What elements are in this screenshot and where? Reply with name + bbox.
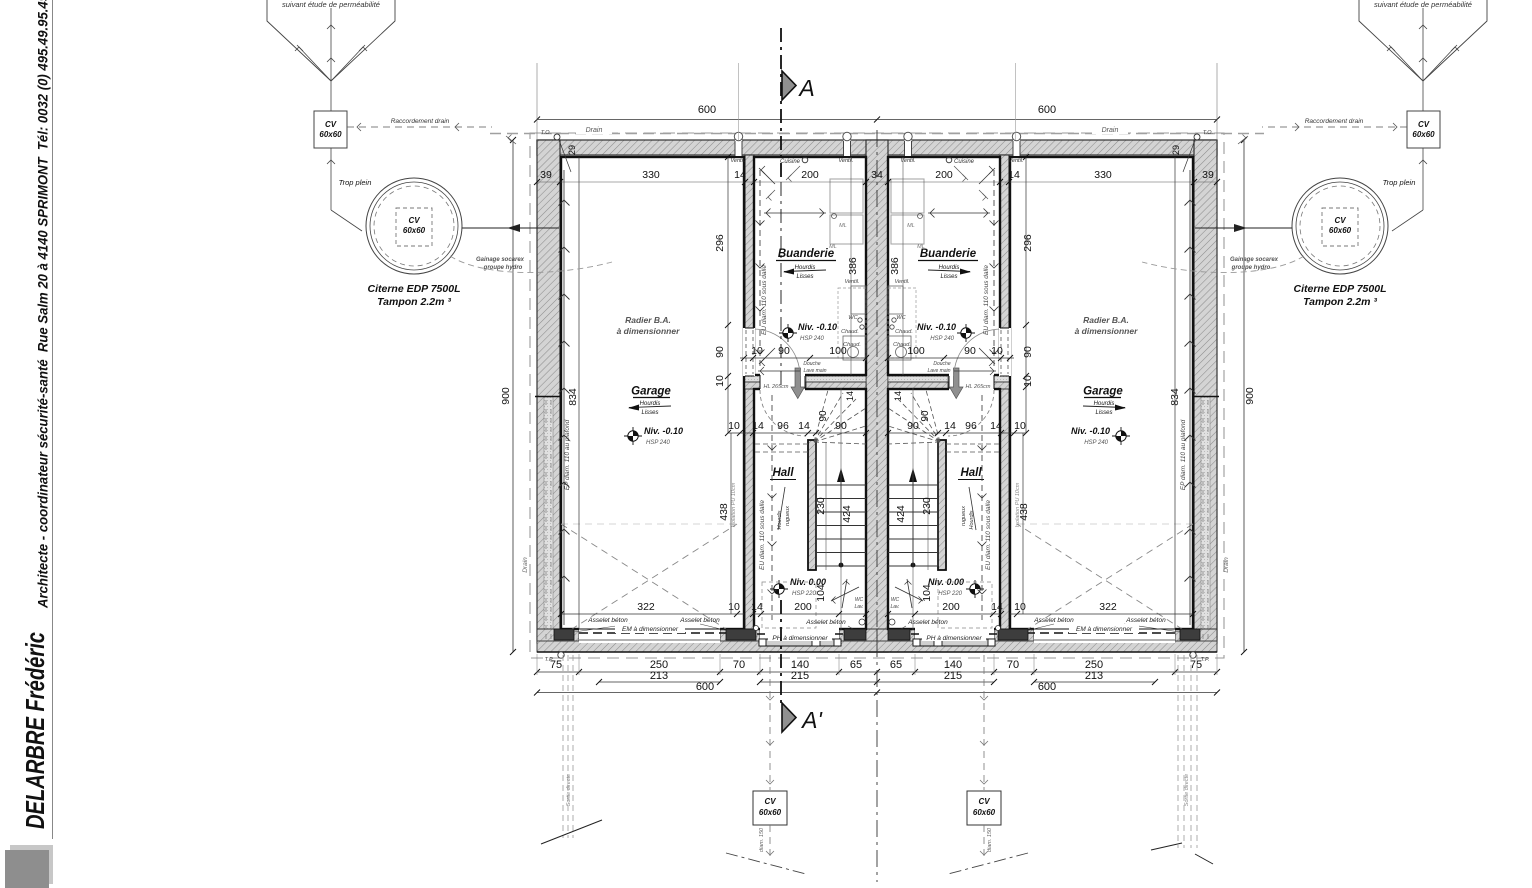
svg-text:322: 322: [637, 601, 655, 613]
svg-text:Trop plein: Trop plein: [1383, 178, 1416, 187]
svg-text:WC: WC: [848, 315, 857, 321]
svg-text:600: 600: [1038, 681, 1056, 693]
svg-text:70: 70: [1007, 659, 1019, 671]
svg-text:PH à dimensionner: PH à dimensionner: [926, 635, 982, 642]
svg-text:834: 834: [567, 388, 579, 406]
svg-text:ML: ML: [839, 223, 847, 229]
svg-text:Drain: Drain: [522, 557, 529, 573]
svg-text:Niv. -0.10: Niv. -0.10: [917, 322, 956, 332]
svg-text:Lisses: Lisses: [940, 274, 957, 280]
svg-text:39: 39: [1202, 169, 1214, 181]
svg-text:600: 600: [696, 681, 714, 693]
svg-text:96: 96: [965, 420, 977, 432]
svg-text:Asselet béton: Asselet béton: [587, 617, 628, 624]
svg-text:ML: ML: [917, 244, 925, 250]
svg-text:EM à dimensionner: EM à dimensionner: [622, 626, 679, 633]
svg-text:Hourdis: Hourdis: [969, 510, 975, 529]
svg-text:438: 438: [1018, 503, 1030, 521]
svg-text:424: 424: [895, 505, 907, 523]
svg-text:EU diam. 110 sous dalle: EU diam. 110 sous dalle: [985, 500, 992, 570]
svg-text:Lisses: Lisses: [641, 410, 658, 416]
svg-text:60x60: 60x60: [403, 226, 426, 235]
svg-text:Lisses: Lisses: [1095, 410, 1112, 416]
svg-text:EU diam. 110 sous dalle: EU diam. 110 sous dalle: [761, 265, 768, 335]
svg-text:14: 14: [893, 391, 903, 401]
svg-text:DELARBRE Frédéric: DELARBRE Frédéric: [20, 632, 50, 829]
svg-text:Sortie directe: Sortie directe: [566, 774, 572, 806]
svg-text:Architecte - coordinateur sécu: Architecte - coordinateur sécurité-santé…: [36, 0, 51, 609]
svg-text:Ventil.: Ventil.: [844, 279, 859, 285]
svg-text:ML: ML: [907, 223, 915, 229]
svg-text:ML: ML: [829, 244, 837, 250]
svg-text:WC: WC: [891, 597, 900, 603]
svg-text:Raccordement drain: Raccordement drain: [1305, 118, 1364, 125]
svg-text:Douche: Douche: [803, 361, 820, 367]
svg-text:CV: CV: [978, 797, 990, 806]
svg-text:70: 70: [733, 659, 745, 671]
svg-text:600: 600: [1038, 104, 1056, 116]
svg-text:Lave main: Lave main: [803, 368, 826, 374]
svg-text:65: 65: [850, 659, 862, 671]
svg-text:14: 14: [990, 420, 1002, 432]
svg-text:96: 96: [777, 420, 789, 432]
svg-text:213: 213: [1085, 670, 1103, 682]
svg-text:à dimensionner: à dimensionner: [1075, 326, 1139, 336]
svg-text:Lisses: Lisses: [796, 274, 813, 280]
svg-text:90: 90: [818, 410, 829, 422]
svg-text:WC: WC: [855, 597, 864, 603]
svg-text:Cuisine: Cuisine: [780, 159, 801, 165]
svg-text:groupe hydro: groupe hydro: [1231, 265, 1271, 271]
svg-text:Citerne EDP 7500L: Citerne EDP 7500L: [1294, 283, 1387, 295]
svg-text:215: 215: [791, 670, 809, 682]
svg-text:60x60: 60x60: [1329, 226, 1352, 235]
svg-text:WC: WC: [896, 315, 905, 321]
svg-text:Drain: Drain: [586, 127, 603, 134]
svg-text:14: 14: [751, 601, 763, 613]
svg-text:200: 200: [935, 169, 953, 181]
svg-text:à dimensionner: à dimensionner: [617, 326, 681, 336]
svg-text:330: 330: [1094, 169, 1112, 181]
svg-text:600: 600: [698, 104, 716, 116]
svg-text:Tampon 2.2m ³: Tampon 2.2m ³: [1303, 296, 1377, 308]
svg-text:CV: CV: [1334, 216, 1346, 225]
svg-text:suivant étude de perméabilité: suivant étude de perméabilité: [282, 0, 380, 9]
svg-text:Ventil.: Ventil.: [730, 158, 745, 164]
svg-text:90: 90: [964, 345, 976, 357]
svg-text:900: 900: [500, 387, 512, 405]
svg-text:Lav.: Lav.: [854, 604, 863, 610]
svg-text:104: 104: [815, 584, 827, 602]
svg-text:Lav.: Lav.: [890, 604, 899, 610]
svg-text:90: 90: [920, 410, 931, 422]
svg-text:10: 10: [1014, 420, 1026, 432]
svg-text:Radier B.A.: Radier B.A.: [1083, 315, 1129, 325]
svg-text:HSP 240: HSP 240: [800, 336, 824, 342]
svg-text:diam. 150: diam. 150: [987, 827, 993, 852]
svg-text:groupe hydro: groupe hydro: [483, 265, 523, 271]
svg-text:14: 14: [798, 420, 810, 432]
svg-text:HSP 220: HSP 220: [938, 591, 962, 597]
svg-text:EU diam. 110 sous dalle: EU diam. 110 sous dalle: [759, 500, 766, 570]
svg-text:suivant étude de perméabilité: suivant étude de perméabilité: [1374, 0, 1472, 9]
svg-text:215: 215: [944, 670, 962, 682]
svg-text:Drain: Drain: [1223, 557, 1230, 573]
svg-text:Chaud.: Chaud.: [895, 329, 913, 335]
svg-text:Garage: Garage: [1083, 386, 1123, 398]
svg-text:10: 10: [728, 420, 740, 432]
svg-text:29: 29: [567, 145, 577, 155]
svg-text:Sortie directe: Sortie directe: [1184, 774, 1190, 806]
svg-text:14: 14: [734, 169, 746, 181]
svg-text:Niv. -0.10: Niv. -0.10: [644, 426, 683, 436]
svg-text:HSP 240: HSP 240: [930, 336, 954, 342]
svg-text:14: 14: [991, 601, 1003, 613]
svg-text:90: 90: [1022, 346, 1034, 358]
svg-text:CV: CV: [1418, 120, 1430, 129]
svg-text:HL 265cm: HL 265cm: [764, 384, 789, 390]
svg-text:Chaud.: Chaud.: [841, 329, 859, 335]
svg-text:Asselet béton: Asselet béton: [1125, 617, 1166, 624]
svg-text:60x60: 60x60: [1412, 130, 1435, 139]
svg-text:60x60: 60x60: [319, 130, 342, 139]
svg-text:EP diam. 110 au plafond: EP diam. 110 au plafond: [564, 419, 571, 490]
svg-text:386: 386: [847, 257, 859, 275]
svg-text:14: 14: [944, 420, 956, 432]
svg-text:HSP 240: HSP 240: [646, 440, 670, 446]
svg-text:10: 10: [991, 345, 1003, 357]
svg-text:60x60: 60x60: [973, 808, 996, 817]
svg-text:29: 29: [1171, 145, 1181, 155]
svg-text:60x60: 60x60: [759, 808, 782, 817]
svg-text:Asselet béton: Asselet béton: [805, 619, 846, 626]
svg-text:T.O.: T.O.: [1203, 130, 1213, 136]
svg-text:10: 10: [1022, 375, 1034, 387]
svg-text:Garage: Garage: [631, 386, 671, 398]
svg-text:Hall: Hall: [772, 467, 794, 479]
svg-text:HL 265cm: HL 265cm: [966, 384, 991, 390]
svg-text:Tampon 2.2m ³: Tampon 2.2m ³: [377, 296, 451, 308]
svg-text:Isolation PU 10cm: Isolation PU 10cm: [731, 482, 737, 527]
svg-text:rugueux: rugueux: [961, 506, 967, 526]
svg-text:296: 296: [1022, 234, 1034, 252]
svg-text:Cuisine: Cuisine: [954, 159, 975, 165]
svg-text:rugueux: rugueux: [785, 506, 791, 526]
svg-text:EU diam. 110 sous dalle: EU diam. 110 sous dalle: [983, 265, 990, 335]
svg-text:10: 10: [751, 345, 763, 357]
svg-text:Trop plein: Trop plein: [339, 178, 372, 187]
svg-text:diam. 150: diam. 150: [759, 827, 765, 852]
svg-text:75: 75: [550, 659, 562, 671]
svg-text:T.O.: T.O.: [541, 130, 551, 136]
svg-text:Ventil.: Ventil.: [894, 279, 909, 285]
svg-text:296: 296: [714, 234, 726, 252]
svg-text:75: 75: [1190, 659, 1202, 671]
svg-text:10: 10: [728, 601, 740, 613]
svg-text:834: 834: [1169, 388, 1181, 406]
svg-text:Buanderie: Buanderie: [778, 248, 835, 260]
svg-text:200: 200: [794, 601, 812, 613]
svg-text:100: 100: [829, 345, 847, 357]
svg-text:39: 39: [540, 169, 552, 181]
svg-text:213: 213: [650, 670, 668, 682]
svg-text:Asselet béton: Asselet béton: [907, 619, 948, 626]
svg-text:90: 90: [714, 346, 726, 358]
svg-text:CV: CV: [408, 216, 420, 225]
svg-text:Asselet béton: Asselet béton: [1033, 617, 1074, 624]
svg-text:900: 900: [1244, 387, 1256, 405]
svg-text:424: 424: [841, 505, 853, 523]
svg-text:HSP 220: HSP 220: [792, 591, 816, 597]
svg-text:EP diam. 110 au plafond: EP diam. 110 au plafond: [1180, 419, 1187, 490]
svg-text:Niv. -0.10: Niv. -0.10: [1071, 426, 1110, 436]
svg-text:10: 10: [714, 375, 726, 387]
svg-text:438: 438: [718, 503, 730, 521]
svg-text:Radier B.A.: Radier B.A.: [625, 315, 671, 325]
svg-text:Drain: Drain: [1102, 127, 1119, 134]
svg-text:Raccordement drain: Raccordement drain: [391, 118, 450, 125]
svg-text:230: 230: [815, 497, 827, 515]
svg-text:HSP 240: HSP 240: [1084, 440, 1108, 446]
svg-text:CV: CV: [764, 797, 776, 806]
svg-text:Hourdis: Hourdis: [777, 510, 783, 529]
svg-text:Citerne EDP 7500L: Citerne EDP 7500L: [368, 283, 461, 295]
svg-text:65: 65: [890, 659, 902, 671]
svg-text:14: 14: [752, 420, 764, 432]
svg-text:Hall: Hall: [960, 467, 982, 479]
svg-text:14: 14: [845, 391, 855, 401]
svg-text:Lave main: Lave main: [927, 368, 950, 374]
svg-text:330: 330: [642, 169, 660, 181]
svg-text:386: 386: [889, 257, 901, 275]
svg-text:100: 100: [907, 345, 925, 357]
svg-text:200: 200: [801, 169, 819, 181]
svg-text:Gainage socarex: Gainage socarex: [1230, 257, 1279, 263]
svg-text:Asselet béton: Asselet béton: [679, 617, 720, 624]
svg-text:14: 14: [1008, 169, 1020, 181]
svg-text:A': A': [800, 707, 823, 733]
svg-text:Niv. -0.10: Niv. -0.10: [798, 322, 837, 332]
svg-text:CV: CV: [325, 120, 337, 129]
svg-text:Gainage socarex: Gainage socarex: [476, 257, 525, 263]
svg-text:Ventil.: Ventil.: [1008, 158, 1023, 164]
svg-text:322: 322: [1099, 601, 1117, 613]
svg-text:Buanderie: Buanderie: [920, 248, 977, 260]
svg-text:90: 90: [778, 345, 790, 357]
svg-text:230: 230: [921, 497, 933, 515]
svg-text:A: A: [797, 75, 814, 101]
svg-text:104: 104: [921, 584, 933, 602]
svg-text:EM à dimensionner: EM à dimensionner: [1076, 626, 1133, 633]
svg-text:Douche: Douche: [933, 361, 950, 367]
svg-text:10: 10: [1014, 601, 1026, 613]
svg-text:200: 200: [942, 601, 960, 613]
